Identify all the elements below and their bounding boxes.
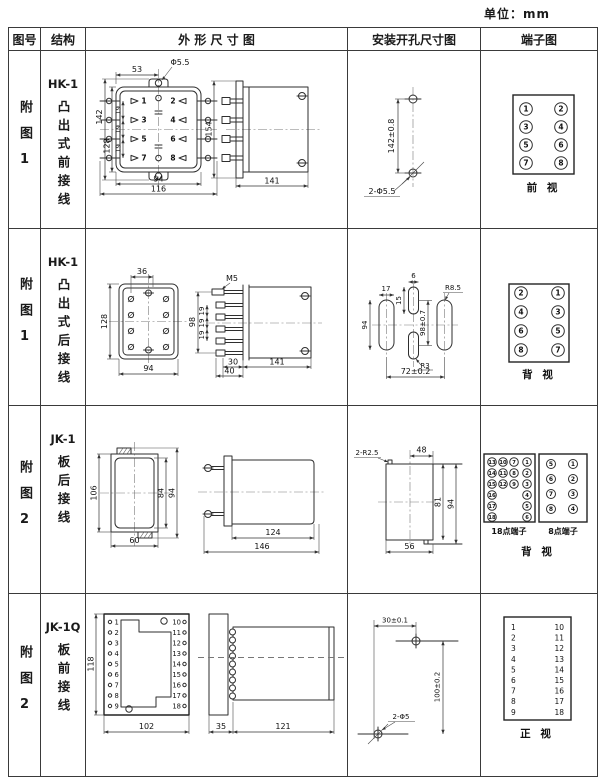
row3-terminal-cell: 13 10 7 1 14 11 8 2 15 12 9 3 16 4 17 5 <box>481 406 597 593</box>
svg-text:10: 10 <box>554 623 564 632</box>
row4-terminal-cell: 1 2 3 4 5 6 7 8 9 10 11 12 13 14 15 <box>481 594 597 776</box>
dim-98: 98 <box>188 317 197 327</box>
holes-label: 2-Φ5.5 <box>369 187 396 196</box>
terminal-numbers-left: 1 2 3 4 5 6 7 8 9 <box>511 623 516 717</box>
svg-text:7: 7 <box>141 154 146 163</box>
svg-text:5: 5 <box>141 135 146 144</box>
dim-100-tol: 100±0.2 <box>434 672 442 702</box>
jk1q-outline-drawing: 1 2 3 4 5 6 7 8 9 10 11 12 13 14 15 16 1 <box>86 594 347 776</box>
header-outline: 外 形 尺 寸 图 <box>86 28 347 50</box>
svg-text:2: 2 <box>558 105 563 114</box>
svg-text:5: 5 <box>555 327 560 336</box>
svg-text:17: 17 <box>488 504 496 510</box>
header-install: 安装开孔尺寸图 <box>348 28 480 50</box>
svg-text:14: 14 <box>172 660 181 668</box>
svg-text:3: 3 <box>511 644 516 653</box>
figure-number: 附图1 <box>15 277 34 357</box>
row1-structure-cell: HK-1 凸出式前接线 <box>41 51 85 228</box>
model-name: HK-1 <box>48 77 78 91</box>
svg-text:14: 14 <box>554 665 564 674</box>
svg-text:7: 7 <box>555 346 560 355</box>
side-dimensions: 124 146 <box>204 516 319 554</box>
label-m5: M5 <box>226 274 238 283</box>
dim-35: 35 <box>216 722 226 731</box>
row4-outline-cell: 1 2 3 4 5 6 7 8 9 10 11 12 13 14 15 16 1 <box>86 594 347 776</box>
label-18-point: 18点端子 <box>491 526 526 536</box>
svg-text:8: 8 <box>170 154 175 163</box>
svg-text:7: 7 <box>512 460 516 466</box>
terminal-numbers-right: 10 11 12 13 14 15 16 17 18 <box>554 623 564 717</box>
dim-94: 94 <box>153 175 163 184</box>
svg-text:8: 8 <box>511 697 516 706</box>
svg-text:3: 3 <box>571 491 575 498</box>
model-name: HK-1 <box>48 255 78 269</box>
svg-text:12: 12 <box>172 639 181 647</box>
svg-text:15: 15 <box>172 671 181 679</box>
dim-116: 116 <box>151 185 166 194</box>
svg-text:3: 3 <box>555 308 560 317</box>
hk1-front-terminal-diagram: 1 2 3 4 5 6 7 8 前 视 <box>481 51 597 228</box>
hk1-front-install-drawing: 142±0.8 2-Φ5.5 <box>348 51 480 228</box>
svg-text:6: 6 <box>511 676 516 685</box>
row4-structure-cell: JK-1Q 板前接线 <box>41 594 85 776</box>
row1-terminal-cell: 1 2 3 4 5 6 7 8 前 视 <box>481 51 597 228</box>
row2-install-cell: 17 6 15 94 98±0.7 R8.5 R3 <box>348 229 480 405</box>
wiring-type: 板前接线 <box>54 643 73 717</box>
dim-142: 142 <box>95 109 104 124</box>
center-lines <box>372 281 458 367</box>
svg-text:4: 4 <box>511 655 516 664</box>
install-dimensions: 48 2-R2.5 81 94 56 <box>354 446 456 555</box>
hk1-rear-terminal-diagram: 2 1 4 3 6 5 8 7 背 视 <box>481 229 597 405</box>
dim-121: 121 <box>275 722 290 731</box>
row4-fig-cell: 附图2 <box>9 594 40 776</box>
model-name: JK-1Q <box>46 620 81 634</box>
label-2-r2-5: 2-R2.5 <box>356 449 379 457</box>
dim-94: 94 <box>143 364 153 373</box>
manual-page: 单位：mm 图号 结构 外 形 尺 寸 图 安装开孔尺寸图 端子图 附图1 HK… <box>0 0 604 782</box>
dim-40: 40 <box>224 367 234 376</box>
dim-146: 146 <box>254 542 269 551</box>
dim-72-tol: 72±0.2 <box>401 367 431 376</box>
dim-118: 118 <box>87 656 96 671</box>
dim-60: 60 <box>129 536 139 545</box>
svg-text:11: 11 <box>172 629 181 637</box>
wiring-type: 凸出式前接线 <box>54 100 73 211</box>
svg-text:6: 6 <box>115 671 119 679</box>
dim-19: 19 <box>198 307 206 316</box>
side-view <box>212 285 311 360</box>
dim-94: 94 <box>168 488 177 498</box>
svg-text:16: 16 <box>554 687 564 696</box>
svg-text:1: 1 <box>511 623 516 632</box>
svg-text:4: 4 <box>525 493 529 499</box>
view-label: 正 视 <box>520 727 554 740</box>
row2-outline-cell: 36 128 94 <box>86 229 347 405</box>
view-label: 背 视 <box>522 368 556 381</box>
figure-number: 附图1 <box>15 100 34 180</box>
wiring-type: 板后接线 <box>54 455 73 529</box>
svg-text:6: 6 <box>518 327 523 336</box>
svg-text:6: 6 <box>549 476 553 483</box>
row3-structure-cell: JK-1 板后接线 <box>41 406 85 593</box>
dim-30-tol: 30±0.1 <box>382 617 408 625</box>
install-dimensions: 17 6 15 94 98±0.7 R8.5 R3 <box>361 272 463 379</box>
svg-text:1: 1 <box>141 97 146 106</box>
unit-label: 单位：mm <box>484 5 550 22</box>
svg-text:9: 9 <box>511 708 516 717</box>
svg-text:13: 13 <box>554 655 564 664</box>
spec-table: 图号 结构 外 形 尺 寸 图 安装开孔尺寸图 端子图 附图1 HK-1 凸出式… <box>8 27 598 777</box>
svg-text:5: 5 <box>511 665 516 674</box>
svg-text:12: 12 <box>499 482 507 488</box>
mounting-slots <box>379 287 452 359</box>
dim-98-tol: 98±0.7 <box>419 310 427 336</box>
dim-94: 94 <box>447 499 456 509</box>
row3-install-cell: 48 2-R2.5 81 94 56 <box>348 406 480 593</box>
dim-154: 154 <box>205 121 214 136</box>
svg-text:17: 17 <box>172 692 181 700</box>
svg-text:15: 15 <box>554 676 564 685</box>
row2-structure-cell: HK-1 凸出式后接线 <box>41 229 85 405</box>
svg-text:5: 5 <box>525 504 529 510</box>
dim-56: 56 <box>404 542 414 551</box>
dim-142-tol: 142±0.8 <box>387 119 396 154</box>
view-label: 背 视 <box>521 545 555 558</box>
svg-text:13: 13 <box>488 460 496 466</box>
install-dimensions: 142±0.8 2-Φ5.5 <box>364 99 410 197</box>
svg-text:1: 1 <box>555 289 560 298</box>
row2-fig-cell: 附图1 <box>9 229 40 405</box>
dim-19: 19 <box>198 331 206 340</box>
svg-text:8: 8 <box>518 346 523 355</box>
svg-text:3: 3 <box>115 639 119 647</box>
svg-text:2: 2 <box>115 629 119 637</box>
svg-text:1: 1 <box>115 618 119 626</box>
svg-text:8: 8 <box>512 471 516 477</box>
header-fig-no: 图号 <box>9 28 40 50</box>
row1-install-cell: 142±0.8 2-Φ5.5 <box>348 51 480 228</box>
svg-text:8: 8 <box>549 506 553 513</box>
side-view <box>203 456 314 526</box>
hk1-rear-outline-drawing: 36 128 94 <box>86 229 347 405</box>
svg-text:10: 10 <box>172 618 181 626</box>
svg-text:2: 2 <box>525 471 529 477</box>
svg-text:7: 7 <box>511 687 516 696</box>
svg-text:11: 11 <box>499 471 507 477</box>
dim-128: 128 <box>103 138 112 153</box>
dim-53: 53 <box>132 65 142 74</box>
svg-text:2: 2 <box>511 634 516 643</box>
dim-106: 106 <box>90 485 99 500</box>
svg-text:16: 16 <box>172 681 181 689</box>
svg-text:18: 18 <box>488 515 496 521</box>
dim-19: 19 <box>115 106 123 115</box>
dim-15: 15 <box>395 296 403 305</box>
svg-text:3: 3 <box>141 116 146 125</box>
install-dimensions: 30±0.1 100±0.2 2-Φ5 <box>374 617 443 740</box>
header-structure: 结构 <box>41 28 85 50</box>
terminal-18-circles <box>488 458 532 522</box>
svg-text:1: 1 <box>523 105 528 114</box>
jk1-terminal-diagram: 13 10 7 1 14 11 8 2 15 12 9 3 16 4 17 5 <box>481 406 597 593</box>
hk1-rear-install-drawing: 17 6 15 94 98±0.7 R8.5 R3 <box>348 229 480 405</box>
svg-text:10: 10 <box>499 460 507 466</box>
dim-102: 102 <box>139 722 154 731</box>
svg-text:4: 4 <box>518 308 523 317</box>
svg-text:5: 5 <box>523 141 528 150</box>
svg-text:3: 3 <box>523 123 528 132</box>
svg-text:3: 3 <box>525 482 529 488</box>
label-r8-5: R8.5 <box>445 284 461 292</box>
dim-17: 17 <box>382 285 391 293</box>
wiring-type: 凸出式后接线 <box>54 278 73 389</box>
svg-text:2: 2 <box>518 289 523 298</box>
svg-text:9: 9 <box>512 482 516 488</box>
dim-6: 6 <box>411 272 416 280</box>
svg-text:9: 9 <box>115 702 119 710</box>
label-8-point: 8点端子 <box>548 526 578 536</box>
dim-19: 19 <box>115 125 123 134</box>
row1-fig-cell: 附图1 <box>9 51 40 228</box>
svg-text:13: 13 <box>172 650 181 658</box>
dim-141: 141 <box>264 177 279 186</box>
svg-text:1: 1 <box>571 461 575 468</box>
svg-text:6: 6 <box>558 141 563 150</box>
figure-number: 附图2 <box>15 460 34 540</box>
row1-outline-cell: 1 2 3 4 5 6 7 8 53 Φ5.5 142 <box>86 51 347 228</box>
dim-141: 141 <box>269 358 284 367</box>
svg-text:14: 14 <box>488 471 496 477</box>
svg-text:4: 4 <box>571 506 575 513</box>
model-name: JK-1 <box>51 432 76 446</box>
jk1q-terminal-diagram: 1 2 3 4 5 6 7 8 9 10 11 12 13 14 15 <box>481 594 597 776</box>
svg-text:4: 4 <box>170 116 175 125</box>
figure-number: 附图2 <box>15 645 34 725</box>
view-label: 前 视 <box>527 181 561 194</box>
terminal-8-numbers: 5 1 6 2 7 3 8 4 <box>549 461 575 513</box>
svg-text:12: 12 <box>554 644 564 653</box>
dim-128: 128 <box>100 314 109 329</box>
jk1-install-drawing: 48 2-R2.5 81 94 56 <box>348 406 480 593</box>
svg-text:4: 4 <box>115 650 119 658</box>
svg-text:8: 8 <box>558 159 563 168</box>
jk1-outline-drawing: 106 60 84 94 <box>86 406 347 593</box>
jk1q-install-drawing: 30±0.1 100±0.2 2-Φ5 <box>348 594 480 776</box>
dim-94: 94 <box>361 320 369 329</box>
header-terminal: 端子图 <box>481 28 597 50</box>
svg-text:6: 6 <box>170 135 175 144</box>
svg-text:15: 15 <box>488 482 496 488</box>
svg-text:16: 16 <box>488 493 496 499</box>
holes-label: 2-Φ5 <box>393 713 410 721</box>
svg-text:7: 7 <box>549 491 553 498</box>
svg-text:18: 18 <box>172 702 181 710</box>
svg-text:6: 6 <box>525 515 529 521</box>
side-view <box>209 614 334 715</box>
svg-text:5: 5 <box>115 660 119 668</box>
svg-text:5: 5 <box>549 461 553 468</box>
svg-text:8: 8 <box>115 692 119 700</box>
svg-text:18: 18 <box>554 708 564 717</box>
svg-text:17: 17 <box>554 697 564 706</box>
svg-text:7: 7 <box>115 681 119 689</box>
dim-48: 48 <box>416 446 426 455</box>
row4-install-cell: 30±0.1 100±0.2 2-Φ5 <box>348 594 480 776</box>
dim-hole: Φ5.5 <box>170 58 189 67</box>
dim-81: 81 <box>434 497 443 507</box>
dim-84: 84 <box>157 488 166 498</box>
svg-text:1: 1 <box>525 460 529 466</box>
svg-text:2: 2 <box>571 476 575 483</box>
svg-text:4: 4 <box>558 123 563 132</box>
dim-124: 124 <box>265 528 280 537</box>
dim-19: 19 <box>115 144 123 153</box>
dim-19: 19 <box>198 319 206 328</box>
svg-text:11: 11 <box>554 634 564 643</box>
dim-36: 36 <box>137 267 147 276</box>
row2-terminal-cell: 2 1 4 3 6 5 8 7 背 视 <box>481 229 597 405</box>
row3-outline-cell: 106 60 84 94 <box>86 406 347 593</box>
dim-30: 30 <box>228 358 238 367</box>
svg-text:2: 2 <box>170 97 175 106</box>
hk1-front-outline-drawing: 1 2 3 4 5 6 7 8 53 Φ5.5 142 <box>86 51 347 228</box>
row3-fig-cell: 附图2 <box>9 406 40 593</box>
svg-text:7: 7 <box>523 159 528 168</box>
